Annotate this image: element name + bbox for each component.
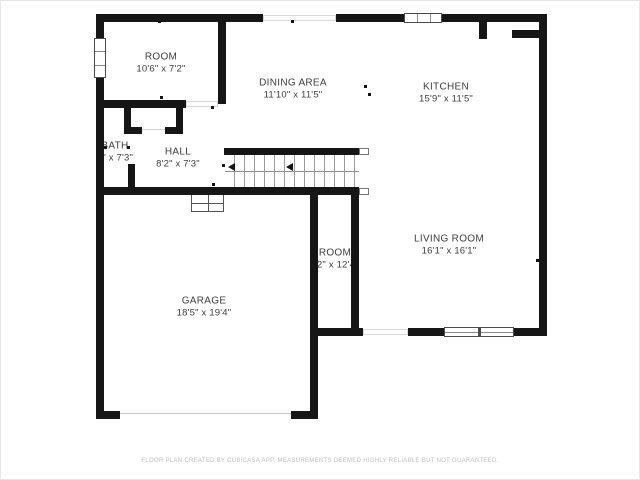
room-dimensions: 15'9" x 11'5" bbox=[419, 94, 473, 106]
wall bbox=[512, 30, 539, 38]
room-name: DINING AREA bbox=[259, 77, 327, 90]
room-dimensions: 8'2" x 7'3" bbox=[156, 159, 200, 171]
floor-plan: ROOM 10'6" x 7'2" DINING AREA 11'10" x 1… bbox=[0, 0, 640, 480]
door-marker bbox=[104, 146, 107, 149]
door-marker bbox=[222, 164, 225, 167]
room-dimensions: 11'10" x 11'5" bbox=[259, 90, 327, 102]
door-marker bbox=[127, 146, 130, 149]
door-marker bbox=[364, 85, 367, 88]
wall bbox=[310, 187, 318, 419]
room-name: ROOM bbox=[315, 247, 355, 260]
wall bbox=[96, 100, 186, 108]
wall-end-cap bbox=[359, 148, 369, 155]
wall bbox=[96, 187, 359, 195]
wall bbox=[442, 14, 547, 22]
room-label-dining-area: DINING AREA 11'10" x 11'5" bbox=[259, 77, 327, 102]
closet-door-opening bbox=[142, 129, 165, 132]
wall-end-cap bbox=[359, 188, 369, 195]
utility-unit-symbol bbox=[191, 194, 224, 212]
wall bbox=[514, 328, 547, 336]
door-marker bbox=[356, 252, 359, 255]
room-name: GARAGE bbox=[177, 295, 232, 308]
stair-direction-arrow bbox=[228, 163, 235, 171]
door-marker bbox=[160, 96, 163, 99]
wall bbox=[124, 127, 142, 134]
wall bbox=[408, 328, 444, 336]
wall bbox=[96, 14, 104, 39]
room-label-hall: HALL 8'2" x 7'3" bbox=[156, 146, 200, 171]
utility-grid-line bbox=[192, 203, 223, 204]
wall bbox=[539, 14, 547, 336]
door-marker bbox=[313, 252, 316, 255]
room-name: LIVING ROOM bbox=[414, 233, 484, 246]
door-marker bbox=[291, 20, 294, 23]
room-dimensions: 10'6" x 7'2" bbox=[136, 64, 185, 76]
room-label-kitchen: KITCHEN 15'9" x 11'5" bbox=[419, 81, 473, 106]
door-marker bbox=[368, 93, 371, 96]
door-marker bbox=[212, 183, 215, 186]
door-opening bbox=[363, 329, 408, 335]
wall bbox=[351, 187, 359, 336]
room-label-room-upper: ROOM 10'6" x 7'2" bbox=[136, 51, 185, 76]
wall bbox=[479, 22, 487, 39]
door-marker bbox=[211, 106, 214, 109]
window bbox=[444, 327, 514, 337]
garage-door-opening bbox=[120, 413, 291, 416]
wall bbox=[336, 14, 404, 22]
door-marker bbox=[536, 259, 539, 262]
room-dimensions: 16'1" x 16'1" bbox=[414, 246, 484, 258]
wall bbox=[96, 77, 104, 419]
staircase bbox=[225, 155, 359, 188]
room-label-room-lower: ROOM '2" x 12'4 bbox=[315, 247, 355, 272]
window bbox=[94, 38, 106, 78]
wall bbox=[96, 411, 120, 419]
door-marker bbox=[158, 20, 161, 23]
wall bbox=[224, 148, 359, 155]
room-dimensions: '2" x 12'4 bbox=[315, 260, 355, 272]
wall bbox=[96, 14, 263, 22]
room-name: HALL bbox=[156, 146, 200, 159]
door-opening bbox=[263, 15, 336, 21]
room-label-garage: GARAGE 18'5" x 19'4" bbox=[177, 295, 232, 320]
room-dimensions: 18'5" x 19'4" bbox=[177, 308, 232, 320]
stair-direction-arrow bbox=[286, 163, 293, 171]
room-name: KITCHEN bbox=[419, 81, 473, 94]
window bbox=[404, 13, 442, 23]
wall bbox=[165, 127, 183, 134]
room-name: ROOM bbox=[136, 51, 185, 64]
room-label-living-room: LIVING ROOM 16'1" x 16'1" bbox=[414, 233, 484, 258]
stair-center-line bbox=[225, 171, 359, 172]
wall bbox=[218, 14, 226, 104]
disclaimer-text: FLOOR PLAN CREATED BY CUBICASA APP. MEAS… bbox=[1, 458, 639, 464]
